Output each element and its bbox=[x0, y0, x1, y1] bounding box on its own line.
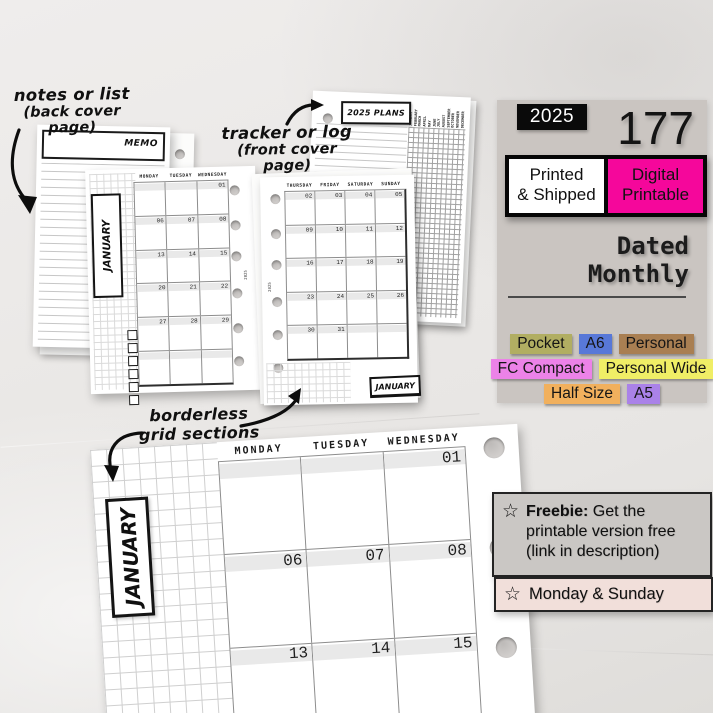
notes-annotation-line1: notes or list bbox=[2, 84, 142, 105]
day-cell: 09 bbox=[286, 225, 317, 258]
date-strip: 18 bbox=[346, 259, 375, 267]
date-number: 24 bbox=[337, 293, 346, 300]
day-cell: 27 bbox=[138, 317, 170, 351]
date-strip: 11 bbox=[346, 225, 375, 233]
date-number: 31 bbox=[337, 326, 346, 333]
planner-type-line1: Dated bbox=[588, 233, 689, 261]
date-strip: 26 bbox=[377, 292, 406, 300]
day-cell: 06 bbox=[135, 216, 167, 250]
date-number: 02 bbox=[305, 192, 314, 199]
checkbox bbox=[127, 330, 137, 340]
punch-hole bbox=[273, 330, 283, 340]
day-cell: 25 bbox=[347, 291, 378, 324]
calendar-week-row: 272829 bbox=[138, 316, 232, 352]
day-cell bbox=[170, 350, 202, 384]
day-cell: 02 bbox=[285, 191, 316, 224]
date-strip: 09 bbox=[286, 226, 315, 234]
day-cell: 15 bbox=[395, 633, 482, 713]
month-label: DECEMBER bbox=[460, 100, 465, 128]
punch-hole bbox=[232, 288, 242, 298]
date-strip: 21 bbox=[168, 284, 199, 292]
punch-hole bbox=[231, 251, 241, 261]
date-strip: 07 bbox=[307, 547, 389, 567]
date-number: 08 bbox=[219, 215, 228, 222]
checkbox bbox=[128, 343, 138, 353]
calendar-week-row: 060708 bbox=[225, 540, 476, 648]
date-number: 01 bbox=[441, 448, 465, 467]
day-cell: 01 bbox=[197, 181, 228, 215]
date-number: 13 bbox=[157, 251, 166, 258]
calendar-grid: 01060708131415202122272829 bbox=[133, 180, 233, 387]
date-strip: 30 bbox=[288, 327, 317, 335]
day-cell: 20 bbox=[137, 284, 169, 318]
mini-month-grid: THURSDAYFRIDAYSATURDAYSUNDAY 02030405091… bbox=[284, 181, 409, 361]
mini-calendar-right-page: 2025 THURSDAYFRIDAYSATURDAYSUNDAY 020304… bbox=[260, 175, 418, 406]
digital-line2: Printable bbox=[608, 185, 703, 205]
date-strip: 07 bbox=[167, 216, 198, 224]
panel-divider bbox=[508, 296, 686, 298]
date-strip: 14 bbox=[313, 640, 395, 660]
size-badge-row: PocketA6Personal bbox=[510, 334, 694, 354]
day-cell bbox=[301, 452, 389, 549]
size-badge: Half Size bbox=[544, 384, 620, 404]
date-strip: 31 bbox=[318, 326, 347, 334]
date-strip bbox=[378, 325, 407, 333]
date-strip: 02 bbox=[285, 192, 314, 200]
date-strip: 29 bbox=[201, 317, 232, 325]
calendar-week-row: 3031 bbox=[288, 324, 408, 359]
date-strip bbox=[219, 459, 301, 479]
year-badge: 2025 bbox=[517, 104, 587, 130]
date-number: 15 bbox=[220, 249, 229, 256]
calendar-week-row: 131415 bbox=[136, 248, 230, 284]
date-number: 20 bbox=[158, 285, 167, 292]
date-number: 11 bbox=[366, 225, 375, 232]
calendar-grid: 020304050910111216171819232425263031 bbox=[284, 189, 409, 361]
day-cell bbox=[166, 181, 198, 215]
big-calendar-page: JANUARY MONDAYTUESDAYWEDNESDAY 010607081… bbox=[90, 424, 536, 713]
start-days-callout: ☆ Monday & Sunday bbox=[494, 577, 713, 612]
printed-shipped-line1: Printed bbox=[509, 165, 604, 185]
planner-type: Dated Monthly bbox=[588, 233, 689, 288]
date-number: 09 bbox=[306, 226, 315, 233]
freebie-callout: ☆ Freebie: Get the printable version fre… bbox=[492, 492, 712, 577]
date-strip: 05 bbox=[375, 191, 404, 199]
checkbox bbox=[128, 369, 138, 379]
punch-hole bbox=[230, 185, 240, 195]
day-cell: 10 bbox=[316, 224, 347, 257]
grid-arrow-left bbox=[98, 428, 146, 484]
day-cell: 28 bbox=[169, 317, 201, 351]
size-badge-row: Half SizeA5 bbox=[544, 384, 660, 404]
calendar-week-row bbox=[139, 350, 233, 385]
calendar-week-row: 01 bbox=[219, 447, 470, 555]
day-cell: 31 bbox=[318, 325, 349, 358]
date-number: 25 bbox=[367, 292, 376, 299]
day-cell bbox=[219, 457, 307, 554]
date-number: 18 bbox=[366, 259, 375, 266]
checkbox bbox=[129, 382, 139, 392]
date-strip: 23 bbox=[287, 293, 316, 301]
tracker-title: 2025 PLANS bbox=[347, 108, 405, 118]
tracker-arrow bbox=[282, 96, 326, 126]
date-strip: 04 bbox=[345, 191, 374, 199]
day-cell: 03 bbox=[315, 191, 346, 224]
day-cell bbox=[134, 182, 166, 216]
date-number: 01 bbox=[218, 182, 227, 189]
date-number: 07 bbox=[365, 546, 389, 565]
date-strip: 15 bbox=[199, 249, 230, 257]
date-number: 06 bbox=[156, 217, 165, 224]
size-badge: Pocket bbox=[510, 334, 571, 354]
edge-year-label: 2025 bbox=[267, 282, 272, 292]
printed-shipped-line2: & Shipped bbox=[509, 185, 604, 205]
date-strip bbox=[348, 326, 377, 334]
day-cell: 17 bbox=[316, 258, 347, 291]
date-number: 13 bbox=[288, 644, 312, 663]
month-tab-label: JANUARY bbox=[100, 220, 113, 272]
big-month-grid: MONDAYTUESDAYWEDNESDAY 01060708131415 bbox=[217, 429, 483, 713]
design-number: 177 bbox=[617, 100, 694, 156]
day-cell: 01 bbox=[383, 447, 470, 544]
size-badge: FC Compact bbox=[491, 359, 592, 379]
date-number: 04 bbox=[365, 191, 374, 198]
day-cell: 15 bbox=[199, 248, 230, 282]
date-number: 14 bbox=[189, 250, 198, 257]
mini-month-grid: MONDAYTUESDAYWEDNESDAY 01060708131415202… bbox=[133, 172, 234, 387]
star-icon: ☆ bbox=[502, 502, 519, 575]
date-number: 17 bbox=[336, 259, 345, 266]
date-strip: 19 bbox=[376, 258, 405, 266]
date-number: 14 bbox=[371, 639, 395, 658]
day-cell: 13 bbox=[136, 250, 168, 284]
calendar-week-row: 09101112 bbox=[286, 223, 406, 259]
date-strip: 08 bbox=[389, 542, 471, 562]
date-strip: 01 bbox=[197, 182, 228, 190]
date-strip: 01 bbox=[383, 449, 465, 469]
day-cell: 24 bbox=[317, 292, 348, 325]
day-cell: 13 bbox=[230, 643, 318, 713]
day-cell: 12 bbox=[376, 223, 406, 256]
date-strip: 12 bbox=[376, 224, 405, 232]
day-cell: 23 bbox=[287, 292, 318, 325]
date-strip bbox=[166, 182, 197, 190]
date-strip: 03 bbox=[315, 192, 344, 200]
size-badge: Personal bbox=[619, 334, 694, 354]
date-number: 03 bbox=[335, 192, 344, 199]
day-cell: 29 bbox=[201, 316, 232, 350]
tracker-annotation-line2: (front cover page) bbox=[212, 141, 363, 176]
punch-hole bbox=[495, 636, 517, 658]
freebie-text-bold: Freebie: bbox=[526, 503, 588, 520]
day-cell: 14 bbox=[168, 249, 200, 283]
day-cell: 06 bbox=[225, 550, 313, 647]
punch-hole bbox=[230, 220, 240, 230]
size-badge: Personal Wide bbox=[599, 359, 713, 379]
day-cell: 08 bbox=[198, 214, 229, 248]
day-cell: 14 bbox=[313, 638, 401, 713]
date-number: 21 bbox=[190, 284, 199, 291]
day-cell: 07 bbox=[167, 215, 199, 249]
calendar-week-row: 060708 bbox=[135, 214, 229, 250]
date-strip: 13 bbox=[136, 251, 167, 259]
day-cell: 04 bbox=[345, 190, 376, 223]
date-number: 06 bbox=[283, 551, 307, 570]
product-image-canvas: MEMO JANUARY MONDAYTUESDAYWEDNESDAY 0106… bbox=[0, 0, 713, 713]
day-cell: 11 bbox=[346, 224, 377, 257]
punch-hole bbox=[272, 297, 282, 307]
day-cell: 07 bbox=[307, 545, 395, 642]
calendar-week-row: 01 bbox=[134, 181, 228, 217]
format-options: Printed & Shipped Digital Printable bbox=[505, 155, 707, 217]
digital-option: Digital Printable bbox=[604, 159, 703, 213]
date-strip: 22 bbox=[200, 283, 231, 291]
calendar-week-row: 202122 bbox=[137, 282, 231, 318]
date-strip: 10 bbox=[316, 225, 345, 233]
mini-calendar-left-page: JANUARY MONDAYTUESDAYWEDNESDAY 010607081… bbox=[85, 166, 261, 394]
date-strip: 06 bbox=[135, 217, 166, 225]
date-strip: 13 bbox=[230, 645, 312, 665]
day-cell bbox=[348, 325, 379, 358]
punch-hole bbox=[483, 437, 505, 459]
date-number: 15 bbox=[453, 634, 477, 653]
date-strip bbox=[134, 183, 165, 191]
freebie-text: Freebie: Get the printable version free … bbox=[526, 502, 704, 575]
month-tab: JANUARY bbox=[105, 497, 155, 618]
day-cell: 21 bbox=[168, 283, 200, 317]
date-number: 07 bbox=[188, 216, 197, 223]
date-strip bbox=[301, 454, 383, 474]
checkbox bbox=[129, 395, 139, 405]
punch-hole bbox=[271, 260, 281, 270]
calendar-week-row: 02030405 bbox=[285, 190, 405, 226]
calendar-grid: 01060708131415 bbox=[218, 446, 483, 713]
day-cell: 30 bbox=[288, 326, 319, 359]
month-tab: JANUARY bbox=[91, 193, 124, 298]
size-badge-row: FC CompactPersonal Wide bbox=[491, 359, 713, 379]
day-cell: 19 bbox=[376, 257, 406, 290]
digital-line1: Digital bbox=[608, 165, 703, 185]
grid-arrow-right bbox=[238, 386, 308, 430]
day-cell bbox=[202, 350, 233, 384]
date-strip: 16 bbox=[286, 260, 315, 268]
date-strip: 28 bbox=[169, 318, 200, 326]
size-badge: A6 bbox=[579, 334, 612, 354]
date-strip: 27 bbox=[138, 318, 169, 326]
date-number: 12 bbox=[396, 224, 405, 231]
checkbox bbox=[128, 356, 138, 366]
notes-arrow bbox=[6, 127, 46, 215]
punch-hole bbox=[270, 194, 280, 204]
date-number: 16 bbox=[306, 260, 315, 267]
tracker-months: JANUARYFEBRUARYMARCHAPRILMAYJUNEJULYAUGU… bbox=[409, 98, 466, 128]
date-number: 29 bbox=[222, 317, 231, 324]
date-strip bbox=[170, 351, 201, 359]
date-strip bbox=[139, 352, 170, 360]
day-cell: 08 bbox=[389, 540, 476, 637]
date-strip: 17 bbox=[316, 259, 345, 267]
printed-shipped-option: Printed & Shipped bbox=[509, 159, 604, 213]
day-cell: 05 bbox=[375, 190, 405, 223]
date-number: 28 bbox=[190, 318, 199, 325]
date-number: 19 bbox=[396, 258, 405, 265]
date-number: 08 bbox=[447, 541, 471, 560]
tracker-annotation: tracker or log (front cover page) bbox=[212, 122, 363, 176]
date-strip: 08 bbox=[198, 215, 229, 223]
date-number: 26 bbox=[397, 292, 406, 299]
date-strip: 24 bbox=[317, 293, 346, 301]
date-number: 22 bbox=[221, 283, 230, 290]
month-tab-label: JANUARY bbox=[115, 507, 145, 607]
date-strip: 25 bbox=[347, 292, 376, 300]
calendar-week-row: 23242526 bbox=[287, 291, 407, 327]
day-cell: 22 bbox=[200, 282, 231, 316]
planner-type-line2: Monthly bbox=[588, 261, 689, 289]
size-badge: A5 bbox=[627, 384, 660, 404]
month-banner: JANUARY bbox=[369, 375, 421, 398]
edge-year-label: 2025 bbox=[243, 270, 248, 280]
memo-title: MEMO bbox=[124, 138, 158, 149]
date-strip: 20 bbox=[137, 285, 168, 293]
day-cell: 26 bbox=[377, 291, 407, 324]
start-days-text: Monday & Sunday bbox=[529, 584, 664, 604]
date-strip: 15 bbox=[395, 635, 477, 655]
date-strip: 06 bbox=[225, 552, 307, 572]
punch-hole bbox=[234, 356, 244, 366]
day-cell: 16 bbox=[286, 259, 317, 292]
info-panel: 2025 177 Printed & Shipped Digital Print… bbox=[497, 100, 707, 403]
punch-hole bbox=[175, 149, 185, 159]
calendar-week-row: 131415 bbox=[230, 633, 481, 713]
month-banner-label: JANUARY bbox=[375, 381, 415, 392]
date-number: 10 bbox=[336, 225, 345, 232]
date-number: 27 bbox=[159, 318, 168, 325]
day-cell bbox=[139, 351, 171, 385]
date-strip: 14 bbox=[168, 250, 199, 258]
day-cell: 18 bbox=[346, 258, 377, 291]
star-icon: ☆ bbox=[504, 585, 521, 605]
date-number: 23 bbox=[307, 293, 316, 300]
size-badges: PocketA6PersonalFC CompactPersonal WideH… bbox=[497, 334, 707, 404]
date-strip bbox=[202, 351, 233, 359]
date-number: 05 bbox=[395, 191, 404, 198]
date-number: 30 bbox=[307, 327, 316, 334]
day-cell bbox=[378, 324, 408, 357]
punch-hole bbox=[271, 229, 281, 239]
calendar-week-row: 16171819 bbox=[286, 257, 406, 293]
punch-hole bbox=[233, 323, 243, 333]
